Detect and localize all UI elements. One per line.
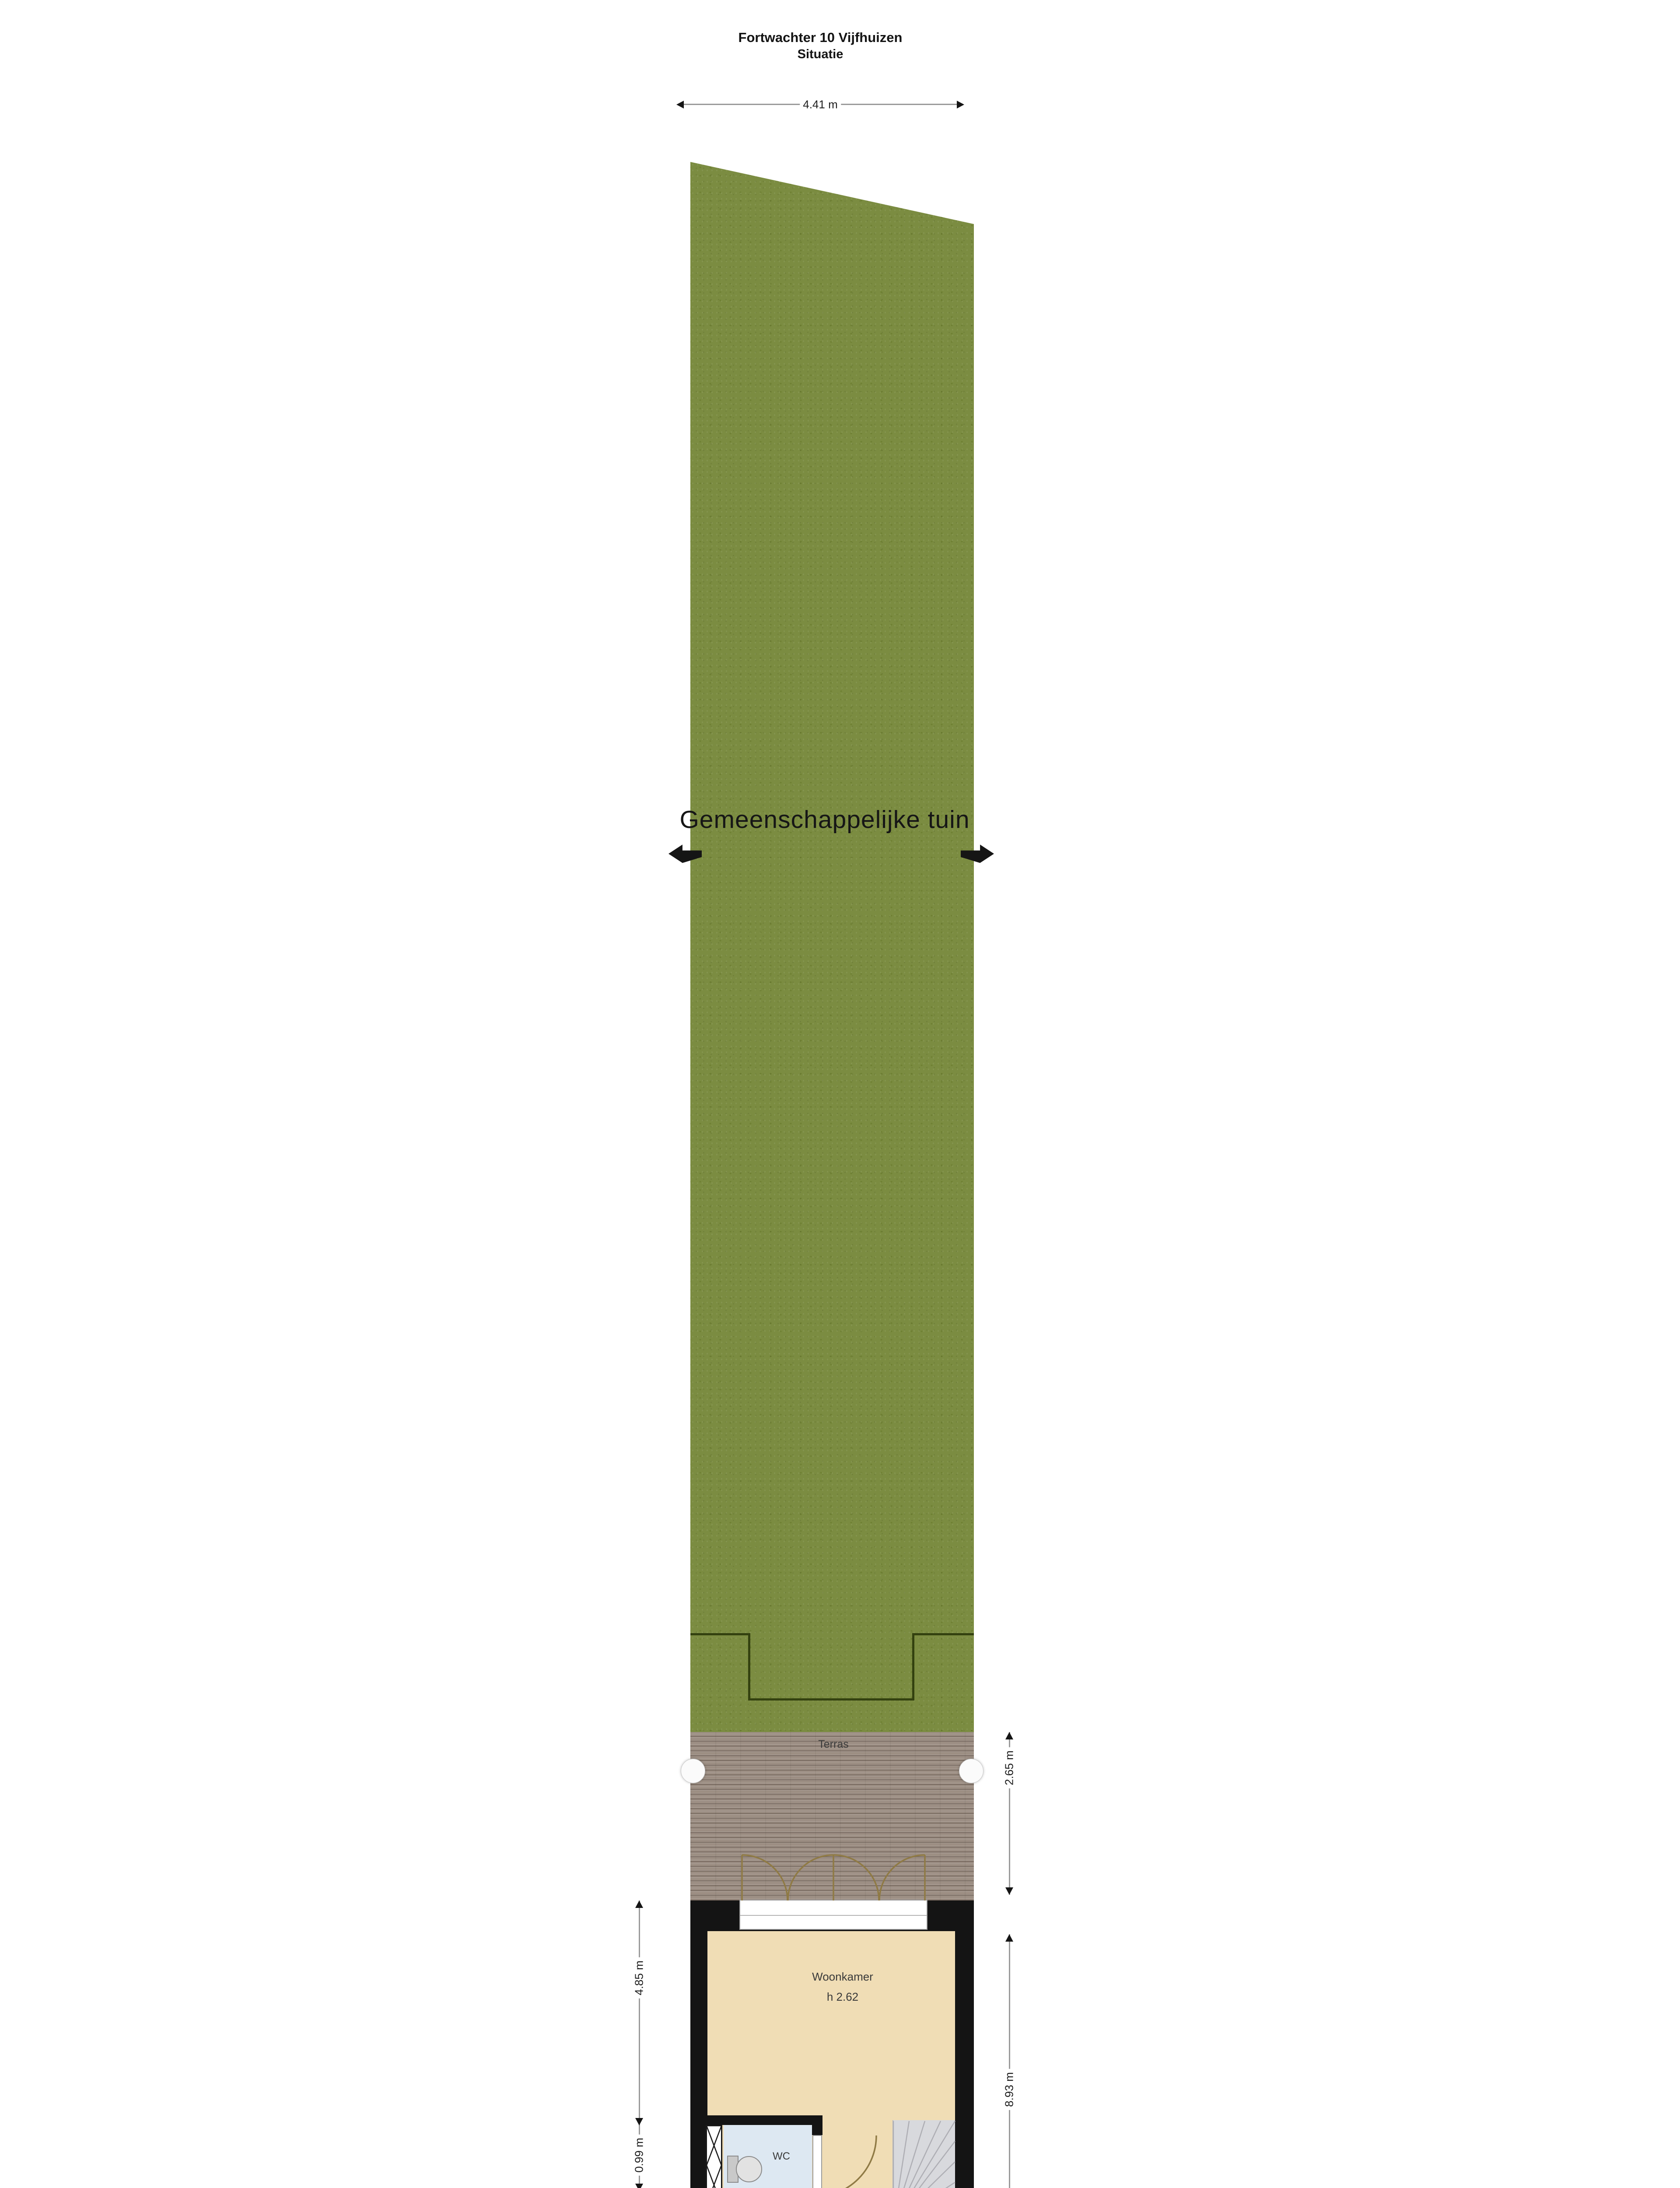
arrow-left-icon (676, 101, 684, 109)
terrace-deck (690, 1732, 974, 1900)
shaft (706, 2125, 722, 2188)
terrace-door-sill (739, 1900, 927, 1930)
terrace-post (681, 1759, 705, 1783)
arrow-down-icon (635, 2118, 643, 2125)
ceiling-height-label: h 2.62 (777, 1990, 908, 2004)
wc-label: WC (759, 2150, 803, 2163)
dimension-label: 2.65 m (1002, 1747, 1017, 1788)
dimension-top-width: 4.41 m (676, 95, 964, 113)
plot-boundary-line (748, 1633, 750, 1701)
dimension-label: 4.41 m (800, 98, 841, 112)
plot-boundary-line (912, 1633, 914, 1701)
dimension-label: 0.99 m (632, 2135, 647, 2176)
arrow-up-icon (1005, 1732, 1013, 1739)
wc-wall-right (812, 2115, 822, 2135)
exterior-wall-east (955, 1931, 974, 2188)
page-title: Fortwachter 10 Vijfhuizen (602, 30, 1039, 46)
terrace-label: Terras (768, 1738, 899, 1751)
dimension-label: 8.93 m (1002, 2069, 1017, 2110)
plot-boundary-line (748, 1698, 914, 1701)
arrow-up-icon (1005, 1934, 1013, 1942)
arrow-right-icon (957, 101, 964, 109)
sill-line (740, 1915, 927, 1916)
wc-wall-top (707, 2115, 821, 2125)
arrow-down-icon (1005, 1887, 1013, 1895)
garden-label-top: Gemeenschappelijke tuin (606, 805, 1043, 834)
dimension-label: 4.85 m (632, 1957, 647, 1999)
situation-floorplan: Fortwachter 10 Vijfhuizen Situatie 4.41 … (0, 0, 1680, 2188)
stairs (892, 2120, 956, 2188)
terrace-post (959, 1759, 983, 1783)
page-subtitle: Situatie (602, 47, 1039, 62)
plot-boundary-line (690, 1633, 750, 1635)
plot-boundary-line (912, 1633, 974, 1635)
wc-door-sill (812, 2135, 822, 2188)
toilet (736, 2156, 762, 2182)
arrow-up-icon (635, 1900, 643, 1908)
exterior-wall-west (690, 1931, 707, 2188)
arrow-down-icon (635, 2184, 643, 2188)
living-room-label: Woonkamer (777, 1970, 908, 1984)
dimension-line-interior (1009, 1934, 1010, 2188)
